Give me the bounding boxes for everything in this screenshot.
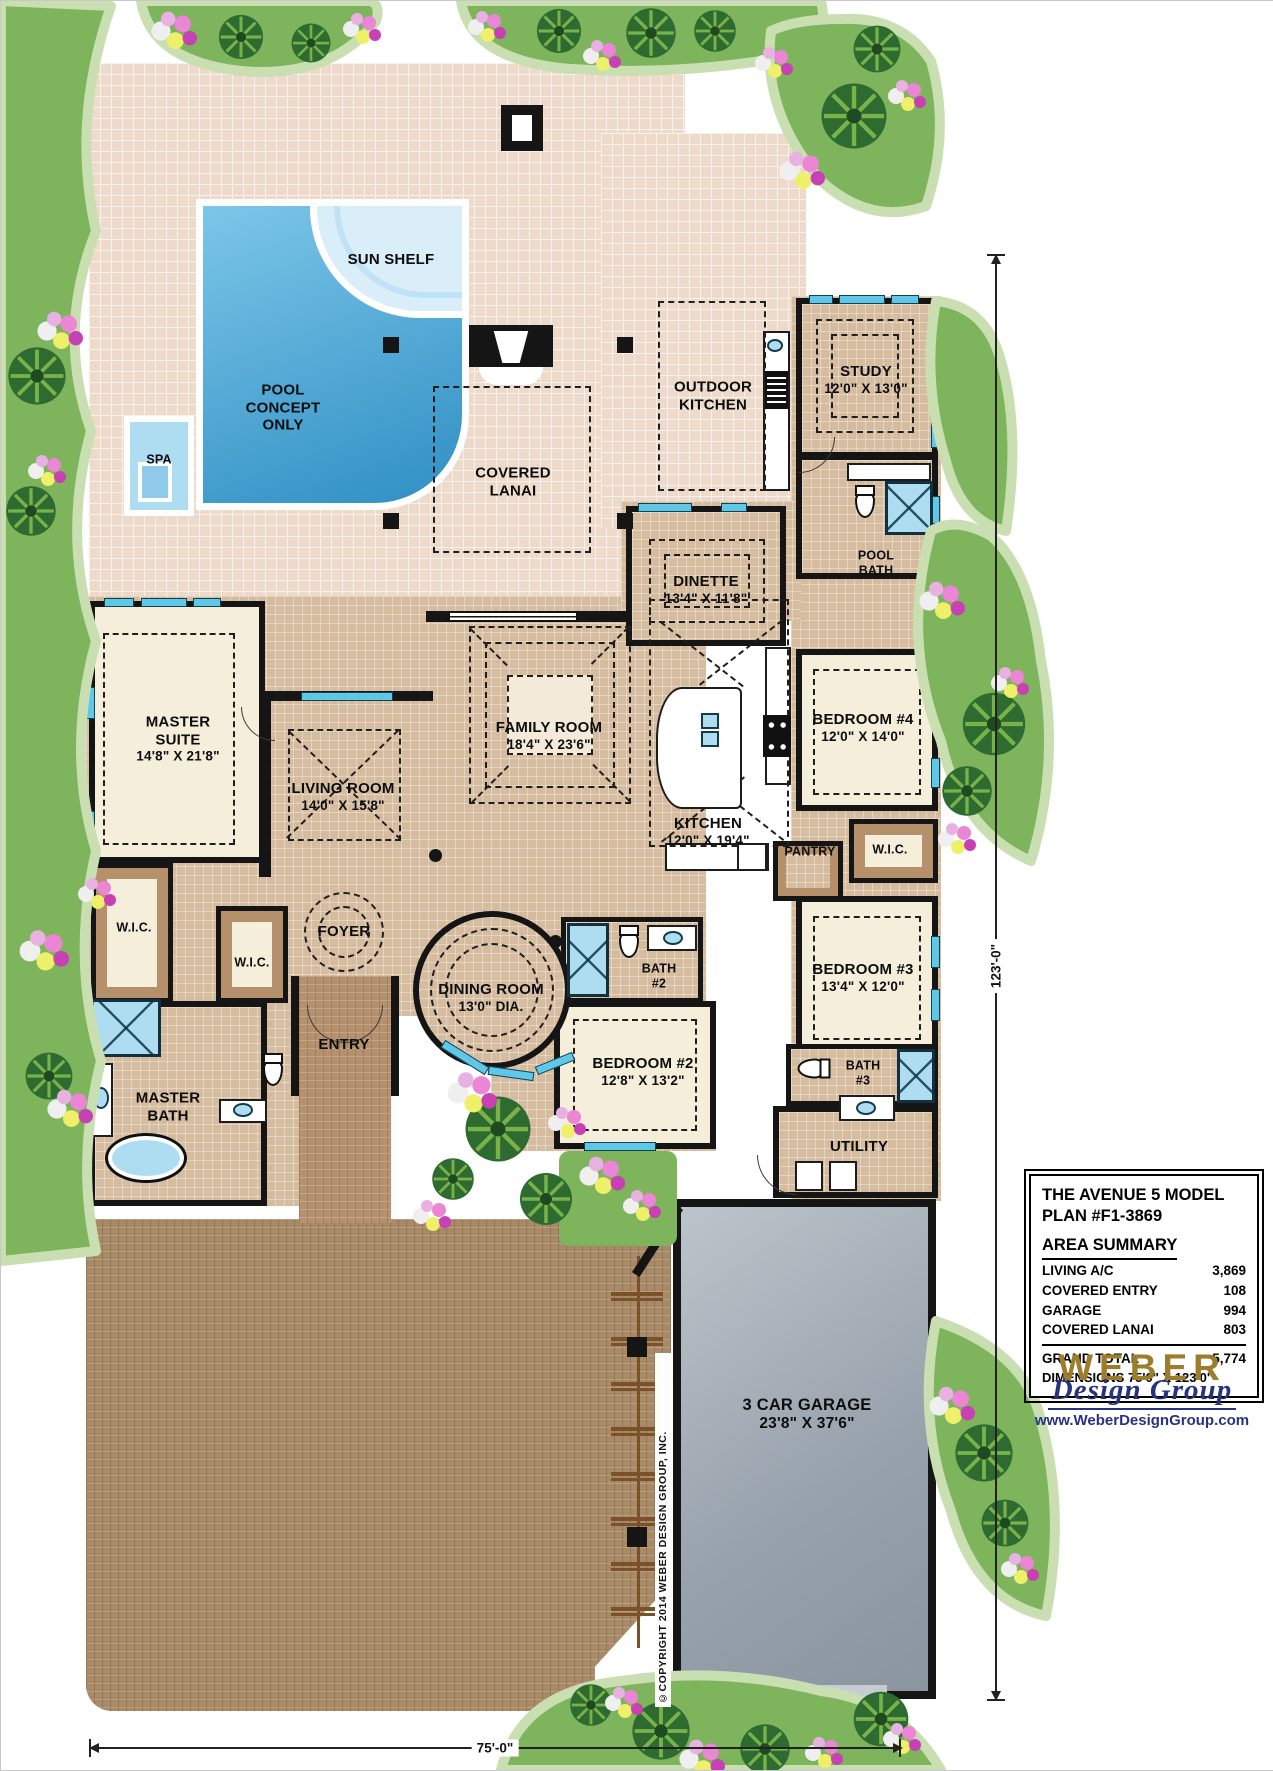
label-garage: 3 CAR GARAGE23'8" X 37'6"	[743, 1396, 872, 1434]
label-bedroom-2: BEDROOM #212'8" X 13'2"	[592, 1055, 693, 1089]
plan-title: THE AVENUE 5 MODEL PLAN #F1-3869	[1042, 1185, 1246, 1227]
kitchen-island	[656, 687, 742, 809]
flower-bed-icon	[37, 312, 83, 349]
window	[193, 598, 221, 607]
dimension-label-bottom: 75'-0"	[472, 1740, 519, 1757]
window	[931, 758, 940, 788]
label-outdoor-kitchen: OUTDOOR KITCHEN	[674, 378, 752, 413]
palm-tree-icon	[982, 1500, 1029, 1547]
shower	[567, 923, 609, 997]
window	[638, 503, 692, 512]
entry-wall	[391, 976, 399, 1096]
window	[931, 662, 940, 692]
grill-icon	[765, 371, 788, 409]
label-pantry: PANTRY	[784, 845, 835, 860]
label-master-suite: MASTER SUITE14'8" X 21'8"	[136, 713, 219, 764]
flower-bed-icon	[468, 11, 506, 42]
label-wic-master-1: W.I.C.	[116, 921, 151, 936]
palm-tree-icon	[694, 10, 736, 52]
palm-tree-icon	[632, 1702, 689, 1759]
planting-bed	[559, 1151, 677, 1246]
pool	[196, 199, 469, 510]
deck-feature-inner	[512, 115, 532, 141]
fireplace-hearth	[479, 367, 543, 385]
flower-bed-icon	[605, 1687, 643, 1718]
label-kitchen: KITCHEN12'0" X 19'4"	[666, 815, 749, 849]
room-wic-master-2	[216, 906, 288, 1003]
label-foyer: FOYER	[318, 923, 371, 941]
palm-tree-icon	[537, 9, 581, 53]
shower	[885, 481, 933, 535]
dimension-tick	[987, 254, 1005, 256]
washer-icon	[795, 1161, 823, 1191]
flower-bed-icon	[343, 13, 381, 44]
label-entry: ENTRY	[318, 1036, 369, 1054]
column	[617, 513, 633, 529]
stove-icon	[763, 715, 791, 757]
palm-tree-icon	[942, 766, 991, 815]
shower	[897, 1049, 935, 1103]
column	[383, 513, 399, 529]
palm-tree-icon	[219, 15, 263, 59]
label-bedroom-3: BEDROOM #313'4" X 12'0"	[812, 961, 913, 995]
dryer-icon	[829, 1161, 857, 1191]
area-summary-heading: AREA SUMMARY	[1042, 1236, 1177, 1260]
trellis-post	[627, 1527, 647, 1547]
driveway	[86, 1219, 671, 1711]
palm-tree-icon	[822, 84, 887, 149]
flower-bed-icon	[888, 80, 926, 111]
window	[839, 295, 885, 304]
palm-tree-icon	[432, 1158, 474, 1200]
flower-bed-icon	[28, 455, 66, 486]
garage-apron	[725, 1701, 881, 1743]
shower	[91, 999, 161, 1057]
label-dinette: DINETTE13'4" X 11'8"	[665, 573, 748, 607]
summary-row-label: COVERED ENTRY	[1042, 1282, 1158, 1300]
label-spa: SPA	[146, 453, 171, 468]
label-bath-2: BATH #2	[642, 961, 677, 991]
label-master-bath: MASTER BATH	[136, 1089, 201, 1124]
label-bath-3: BATH #3	[846, 1058, 881, 1088]
sink-icon	[701, 713, 719, 729]
sink-icon	[663, 931, 683, 945]
flower-bed-icon	[679, 1740, 725, 1770]
summary-row: LIVING A/C3,869	[1042, 1262, 1246, 1280]
label-family-room: FAMILY ROOM18'4" X 23'6"	[496, 719, 602, 753]
column	[383, 337, 399, 353]
garage-door	[719, 1685, 887, 1707]
palm-tree-icon	[8, 347, 65, 404]
summary-row: COVERED ENTRY108	[1042, 1282, 1246, 1300]
column	[549, 935, 562, 948]
flower-bed-icon	[448, 1072, 497, 1112]
sink-icon	[93, 1087, 109, 1109]
label-bedroom-4: BEDROOM #412'0" X 14'0"	[812, 711, 913, 745]
window	[931, 936, 940, 968]
window	[584, 1142, 656, 1151]
summary-row: GARAGE994	[1042, 1302, 1246, 1320]
flower-bed-icon	[755, 47, 793, 78]
palm-tree-icon	[292, 24, 331, 63]
palm-tree-icon	[26, 1053, 73, 1100]
arrow-right-icon	[893, 1743, 903, 1753]
logo-url: www.WeberDesignGroup.com	[1013, 1410, 1271, 1433]
label-dining-room: DINING ROOM13'0" DIA.	[438, 981, 544, 1015]
trellis-post	[627, 1337, 647, 1357]
sink-icon	[233, 1103, 253, 1117]
dimension-tick	[899, 1739, 901, 1757]
label-covered-lanai: COVERED LANAI	[475, 464, 551, 499]
flower-bed-icon	[929, 1387, 975, 1424]
label-utility: UTILITY	[830, 1138, 888, 1156]
palm-tree-icon	[963, 693, 1025, 755]
window	[931, 989, 940, 1021]
label-sun-shelf: SUN SHELF	[348, 251, 435, 269]
window	[301, 692, 393, 701]
window	[931, 314, 940, 338]
outdoor-kitchen-counter	[763, 331, 790, 491]
wall	[576, 611, 626, 622]
flower-bed-icon	[20, 930, 69, 970]
label-wic-master-2: W.I.C.	[234, 956, 269, 971]
label-wic-bedroom4: W.I.C.	[872, 843, 907, 858]
flower-bed-icon	[938, 823, 976, 854]
window	[931, 416, 940, 448]
label-pool-bath: POOL BATH	[858, 548, 894, 578]
summary-row-label: COVERED LANAI	[1042, 1321, 1154, 1339]
dimension-tick	[89, 1739, 91, 1757]
summary-row: COVERED LANAI803	[1042, 1321, 1246, 1339]
door-swing	[757, 1155, 797, 1195]
flower-bed-icon	[1001, 1553, 1039, 1584]
summary-row-value: 803	[1223, 1321, 1246, 1339]
column	[429, 849, 442, 862]
palm-tree-icon	[6, 486, 55, 535]
flower-bed-icon	[151, 12, 197, 49]
spa-bench	[138, 462, 172, 502]
window	[141, 598, 187, 607]
vanity	[847, 463, 931, 481]
window	[104, 598, 134, 607]
label-living-room: LIVING ROOM14'0" X 15'8"	[291, 780, 394, 814]
label-study: STUDY12'0" X 13'0"	[824, 363, 907, 397]
entry-wall	[291, 976, 299, 1096]
sink-icon	[701, 731, 719, 747]
bathtub-icon	[105, 1133, 187, 1183]
dimension-label-right: 123'-0"	[988, 939, 1005, 993]
logo-script: Design Group	[1048, 1376, 1236, 1410]
label-pool: POOL CONCEPT ONLY	[246, 381, 321, 434]
window	[86, 687, 95, 719]
sink-icon	[856, 1101, 876, 1115]
palm-tree-icon	[626, 8, 675, 57]
floor-plan: SUN SHELF POOL CONCEPT ONLY SPA COVERED …	[0, 0, 1273, 1771]
weber-logo: WEBER Design Group www.WeberDesignGroup.…	[1013, 1349, 1271, 1433]
wall	[426, 611, 450, 622]
summary-row-value: 3,869	[1212, 1262, 1246, 1280]
window	[721, 503, 747, 512]
sink-icon	[767, 339, 783, 352]
garage	[673, 1199, 936, 1699]
palm-tree-icon	[854, 26, 901, 73]
dimension-tick	[987, 1699, 1005, 1701]
window	[86, 811, 95, 843]
window	[891, 295, 919, 304]
column	[617, 337, 633, 353]
sliding-door	[448, 611, 578, 622]
window	[809, 295, 833, 304]
summary-row-value: 108	[1223, 1282, 1246, 1300]
palm-tree-icon	[955, 1424, 1012, 1481]
summary-row-label: LIVING A/C	[1042, 1262, 1114, 1280]
summary-row-label: GARAGE	[1042, 1302, 1101, 1320]
copyright-note: ©COPYRIGHT 2014 WEBER DESIGN GROUP, INC.	[655, 1353, 671, 1707]
summary-row-value: 994	[1223, 1302, 1246, 1320]
